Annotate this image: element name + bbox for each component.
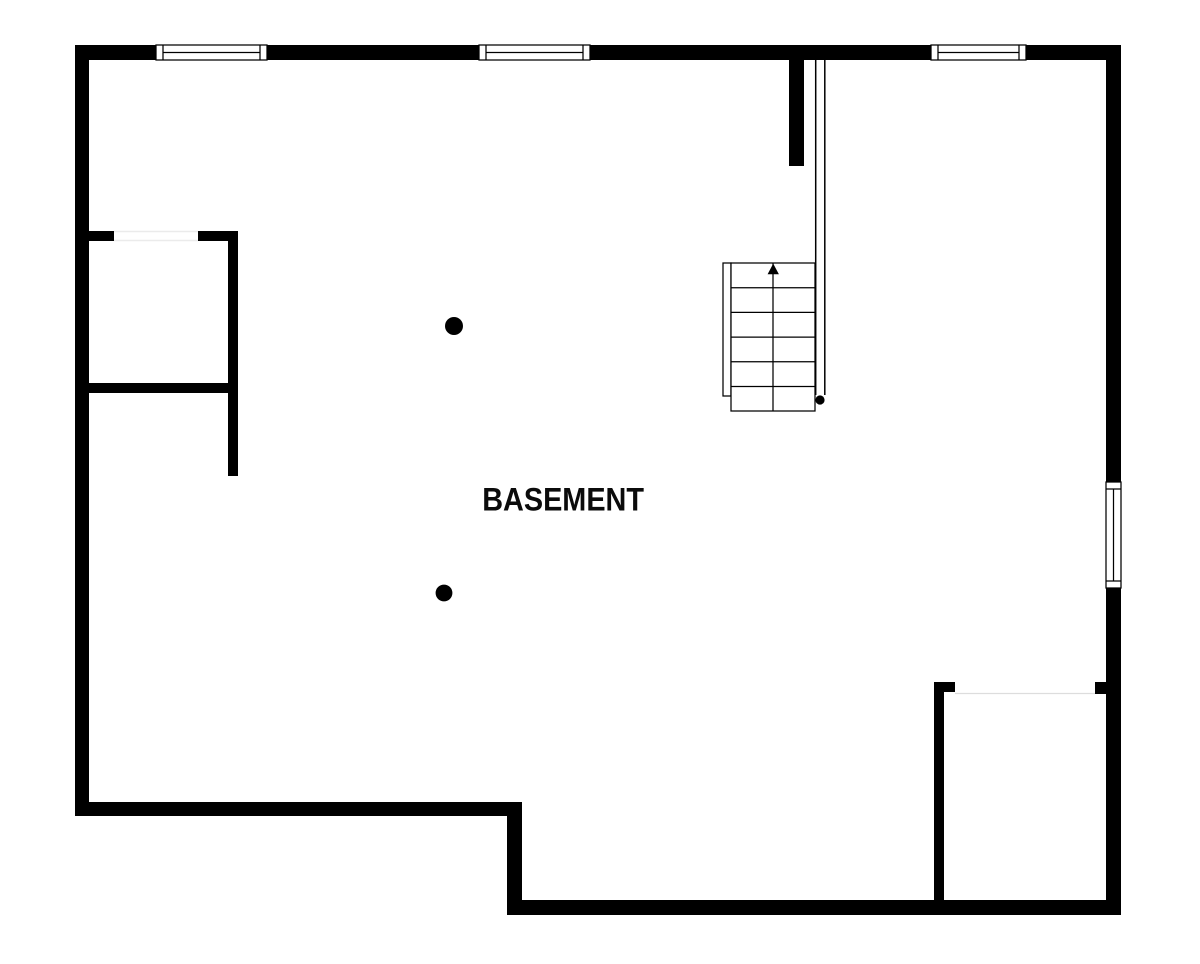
svg-text:BASEMENT: BASEMENT [482,482,644,518]
